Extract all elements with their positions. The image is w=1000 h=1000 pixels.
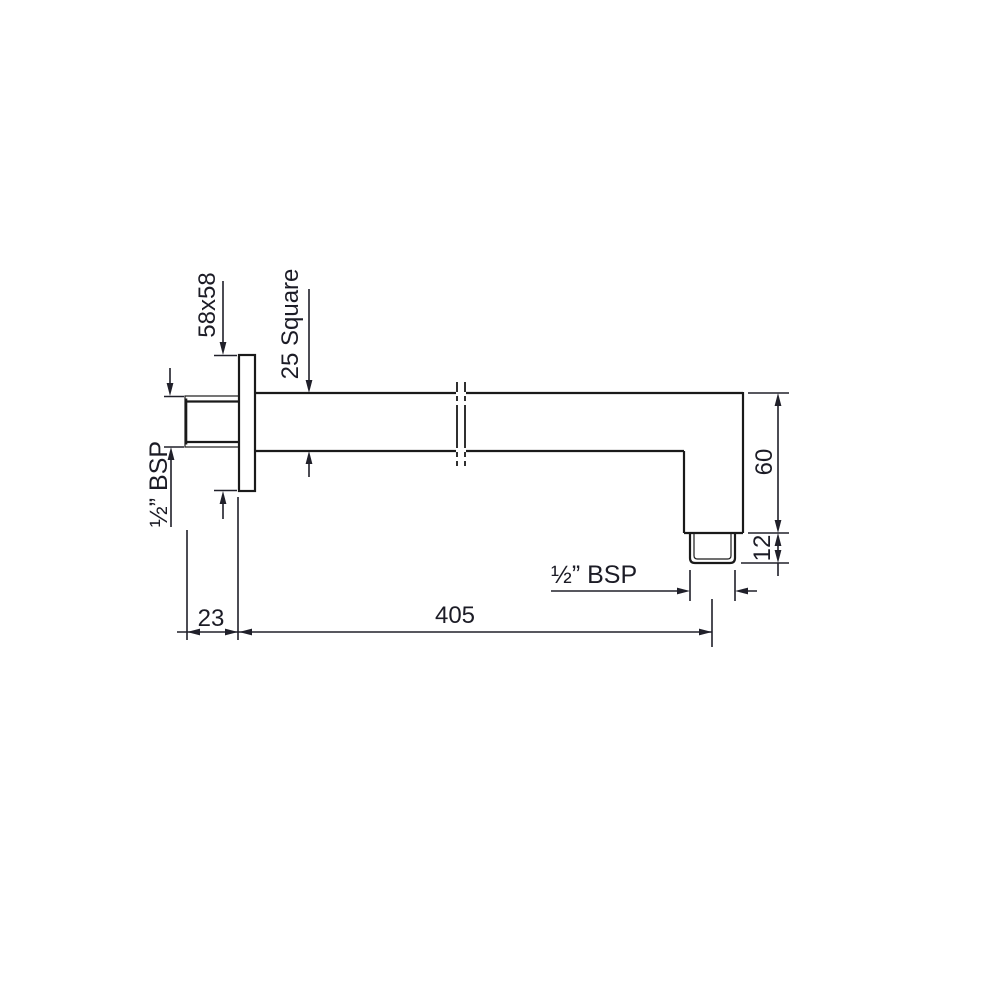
arrow-down-icon xyxy=(775,520,782,533)
wall-flange xyxy=(239,355,255,491)
dim-label-wall-clearance: 23 xyxy=(198,605,225,632)
wall-thread-nipple-outer xyxy=(185,396,239,447)
dim-wall-clearance-23: 23 xyxy=(177,497,238,640)
arm-tube xyxy=(255,392,743,533)
arrow-up-icon xyxy=(306,451,313,464)
technical-drawing-canvas: 58x58 25 Square ½” BSP 60 12 xyxy=(0,0,1000,1000)
break-lines xyxy=(457,382,465,466)
dim-label-reach: 405 xyxy=(435,602,475,629)
arrow-left-icon xyxy=(239,629,252,636)
arrow-up-icon xyxy=(220,491,227,504)
arrow-right-icon xyxy=(225,629,238,636)
arrow-left-icon xyxy=(735,588,748,595)
dim-outlet-12: 12 xyxy=(741,533,789,576)
outlet-nipple-core xyxy=(694,533,731,559)
arrow-right-icon xyxy=(677,588,690,595)
part-outline xyxy=(185,355,743,563)
arrow-up-icon xyxy=(775,393,782,406)
dim-label-outlet-thread: ½” BSP xyxy=(551,561,637,589)
arrow-down-icon xyxy=(167,383,174,396)
dim-label-wall-thread: ½” BSP xyxy=(145,441,173,527)
dim-tube-25-square: 25 Square xyxy=(277,269,312,477)
wall-thread-nipple-core xyxy=(186,399,239,445)
dim-reach-405: 405 xyxy=(238,599,712,647)
arrow-down-icon xyxy=(306,380,313,393)
arrow-down-icon xyxy=(220,342,227,355)
dim-drop-60: 60 xyxy=(748,393,789,533)
dim-label-tube: 25 Square xyxy=(277,269,304,380)
dim-label-drop: 60 xyxy=(751,449,778,476)
shower-arm-dimension-drawing: 58x58 25 Square ½” BSP 60 12 xyxy=(0,0,1000,1000)
dim-outlet-thread-bsp: ½” BSP xyxy=(551,561,757,601)
dim-label-flange: 58x58 xyxy=(194,272,221,337)
dim-label-outlet-length: 12 xyxy=(749,535,776,562)
arrow-right-icon xyxy=(699,629,712,636)
dim-wall-thread-bsp: ½” BSP xyxy=(145,368,184,527)
